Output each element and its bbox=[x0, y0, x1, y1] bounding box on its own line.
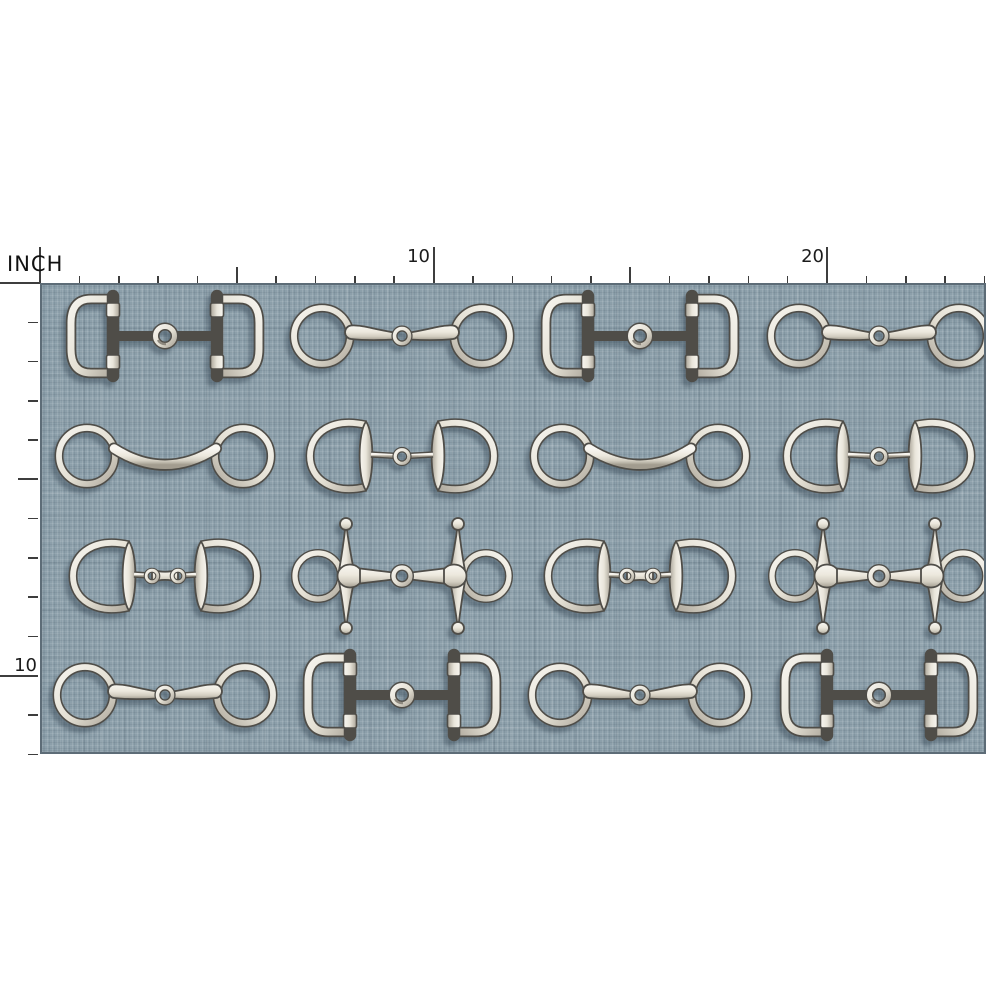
ruler-label-10-vertical: 10 bbox=[14, 655, 37, 676]
inch-tick-horizontal bbox=[748, 276, 750, 283]
inch-tick-horizontal bbox=[315, 276, 317, 283]
inch-tick-horizontal bbox=[275, 276, 277, 283]
ruler-label-20-horizontal: 20 bbox=[801, 246, 824, 267]
eggbutt-bit-icon bbox=[761, 397, 986, 515]
d-ring-bit-icon bbox=[761, 636, 986, 754]
inch-tick-vertical bbox=[28, 636, 38, 638]
inch-tick-vertical bbox=[18, 478, 38, 480]
ruler-unit-label: INCH bbox=[7, 252, 63, 276]
d-ring-bit-icon bbox=[284, 636, 520, 754]
inch-tick-horizontal bbox=[866, 276, 868, 283]
inch-tick-vertical bbox=[28, 322, 38, 324]
mullen-loose-ring-bit-icon bbox=[522, 397, 758, 515]
inch-tick-horizontal bbox=[433, 247, 435, 283]
inch-tick-horizontal bbox=[669, 276, 671, 283]
inch-tick-horizontal bbox=[629, 267, 631, 283]
inch-tick-horizontal bbox=[118, 276, 120, 283]
inch-tick-horizontal bbox=[826, 247, 828, 283]
fabric-swatch bbox=[40, 283, 986, 754]
loose-ring-bit-icon bbox=[522, 636, 758, 754]
inch-tick-horizontal bbox=[157, 276, 159, 283]
d-ring-bit-icon bbox=[522, 283, 758, 395]
inch-tick-vertical bbox=[28, 557, 38, 559]
french-link-eggbutt-bit-icon bbox=[522, 517, 758, 635]
inch-tick-horizontal bbox=[944, 276, 946, 283]
inch-tick-vertical bbox=[28, 714, 38, 716]
inch-tick-vertical bbox=[28, 754, 38, 756]
inch-tick-horizontal bbox=[354, 276, 356, 283]
full-cheek-bit-icon bbox=[284, 517, 520, 635]
loose-ring-bit-icon bbox=[284, 283, 520, 395]
inch-tick-vertical bbox=[28, 439, 38, 441]
ruler-label-10-horizontal: 10 bbox=[407, 246, 430, 267]
inch-tick-horizontal bbox=[472, 276, 474, 283]
fabric-swatch-preview: INCH 10 20 10 bbox=[0, 0, 1000, 1000]
d-ring-bit-icon bbox=[47, 283, 283, 395]
inch-tick-horizontal bbox=[393, 276, 395, 283]
loose-ring-bit-icon bbox=[761, 283, 986, 395]
inch-tick-horizontal bbox=[512, 276, 514, 283]
loose-ring-bit-icon bbox=[47, 636, 283, 754]
ruler-baseline bbox=[0, 282, 40, 284]
inch-tick-horizontal bbox=[787, 276, 789, 283]
inch-tick-horizontal bbox=[708, 276, 710, 283]
eggbutt-bit-icon bbox=[284, 397, 520, 515]
inch-tick-vertical bbox=[28, 596, 38, 598]
inch-tick-horizontal bbox=[551, 276, 553, 283]
inch-tick-horizontal bbox=[984, 276, 986, 283]
inch-tick-horizontal bbox=[905, 276, 907, 283]
mullen-loose-ring-bit-icon bbox=[47, 397, 283, 515]
inch-tick-vertical bbox=[28, 400, 38, 402]
french-link-eggbutt-bit-icon bbox=[47, 517, 283, 635]
full-cheek-bit-icon bbox=[761, 517, 986, 635]
inch-tick-vertical bbox=[28, 361, 38, 363]
inch-tick-horizontal bbox=[197, 276, 199, 283]
inch-tick-horizontal bbox=[236, 267, 238, 283]
inch-tick-horizontal bbox=[590, 276, 592, 283]
inch-tick-horizontal bbox=[79, 276, 81, 283]
inch-tick-vertical bbox=[28, 518, 38, 520]
